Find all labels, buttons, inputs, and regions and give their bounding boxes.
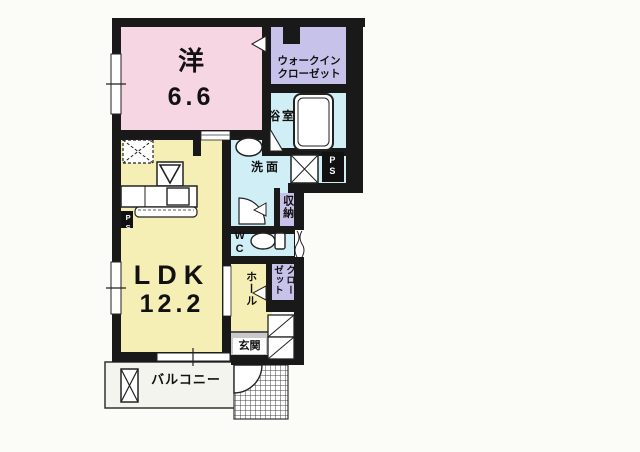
wall-bedroom-ldk bbox=[121, 130, 263, 140]
wall-ldk-corridor-divider bbox=[222, 140, 231, 362]
wall-closet-left bbox=[266, 264, 272, 300]
toilet-bowl bbox=[251, 233, 275, 249]
wall-wc-hall bbox=[231, 256, 304, 264]
wall-closet-bottom bbox=[266, 300, 304, 312]
storage-box bbox=[280, 193, 294, 226]
toilet-tank bbox=[275, 233, 285, 249]
sliding-door-ldk-hall bbox=[223, 266, 231, 316]
wall-right-lower bbox=[294, 183, 304, 365]
wall-wic-bath-divider bbox=[271, 84, 346, 93]
kitchen-sink bbox=[167, 188, 189, 205]
western-room-floor bbox=[116, 22, 268, 136]
entrance-step-line bbox=[226, 331, 272, 333]
washbasin bbox=[236, 138, 262, 156]
bathtub-inner bbox=[298, 98, 329, 146]
kitchen-bar-counter bbox=[135, 207, 197, 217]
wall-right-upper bbox=[346, 18, 363, 193]
closet-floor bbox=[272, 264, 294, 300]
pipe-space-right-box bbox=[322, 152, 344, 182]
wc-window-gap bbox=[295, 230, 304, 257]
entrance-label-background bbox=[233, 338, 266, 354]
wall-storage-left bbox=[274, 188, 280, 226]
wall-top bbox=[112, 18, 365, 27]
floor-plan-page: 洋 6.6 ウォークイン クローゼット 浴室 洗面 PS PS 収納 WC ホー… bbox=[0, 0, 640, 452]
pipe-space-left-box bbox=[121, 211, 133, 228]
wall-kitchen-stub bbox=[193, 130, 201, 156]
floor-plan-drawing bbox=[0, 0, 640, 452]
walk-in-closet-floor bbox=[266, 22, 351, 90]
wall-wic-notch bbox=[283, 22, 300, 44]
